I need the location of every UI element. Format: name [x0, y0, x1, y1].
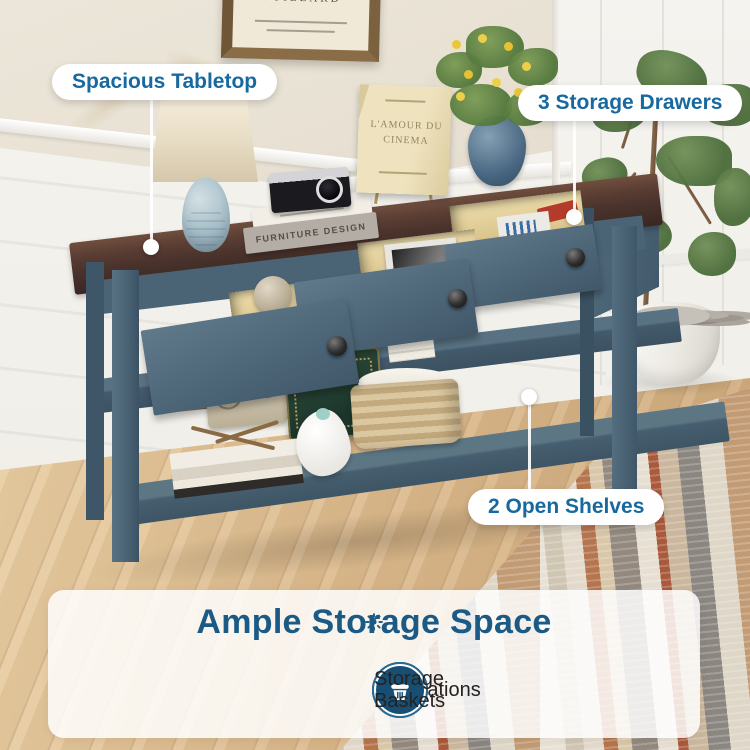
frame-title: VUILLARD	[233, 0, 369, 6]
leader-line-drawers	[573, 121, 576, 213]
callout-drawers: 3 Storage Drawers	[518, 85, 742, 121]
book-author-line	[385, 99, 425, 102]
table-leg-back-left	[86, 262, 104, 520]
picture-frame: VUILLARD	[221, 0, 381, 62]
anchor-dot-drawers	[566, 209, 582, 225]
sun-icon	[364, 612, 384, 632]
drawer-knob	[566, 248, 585, 267]
display-book: L'AMOUR DU CINEMA	[356, 84, 452, 195]
display-book-title: L'AMOUR DU CINEMA	[366, 117, 447, 150]
anchor-dot-shelves	[521, 389, 537, 405]
tree-foliage	[714, 168, 750, 226]
frame-caption-line	[267, 29, 335, 33]
frame-caption-line	[255, 20, 347, 24]
sculpture-accent	[316, 408, 330, 420]
anchor-dot-tabletop	[143, 239, 159, 255]
leader-line-tabletop	[150, 100, 153, 242]
tree-foliage	[688, 232, 736, 276]
feature-banner: Ample Storage Space	[48, 590, 700, 738]
banner-title-row: Ample Storage Space	[48, 600, 700, 644]
drawer-knob	[327, 336, 347, 356]
camera-lens	[316, 176, 343, 203]
feature-list: Decorations Keys	[48, 650, 700, 730]
vase-plant-foliage	[508, 48, 558, 86]
drawer-knob	[448, 289, 467, 308]
lamp-base-ridges	[186, 206, 226, 248]
callout-shelves: 2 Open Shelves	[468, 489, 664, 525]
table-leg-front-right	[612, 226, 637, 496]
vase-plant-foliage	[450, 84, 512, 126]
book-publisher-line	[379, 171, 427, 175]
leader-line-shelves	[528, 403, 531, 491]
product-image: VUILLARD	[0, 0, 750, 750]
lamp-shade	[150, 92, 258, 182]
callout-tabletop: Spacious Tabletop	[52, 64, 277, 100]
table-leg-front-left	[112, 270, 139, 562]
feature-label: Storage Baskets	[374, 668, 458, 713]
wicker-basket	[350, 378, 462, 449]
yellow-blossoms	[452, 40, 461, 49]
